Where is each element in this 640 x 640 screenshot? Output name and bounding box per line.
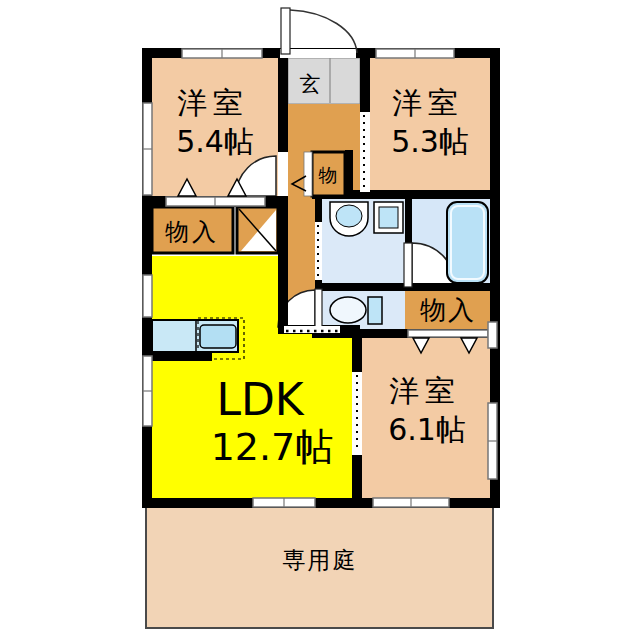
entrance-label: 玄 [300,72,321,96]
washing-machine-icon [374,202,403,233]
hall-ldk-sliding-door [284,326,340,333]
ldk-size: 12.7帖 [211,425,334,469]
bedroom-ne-type: 洋室 [392,85,464,120]
bedroom-se-sliding-door [352,372,362,455]
bedroom-ne-size: 5.3帖 [391,124,469,159]
kitchen-counter-icon [152,318,244,359]
entrance-opening [280,49,356,58]
toilet-icon [330,297,382,324]
bedroom-nw-size: 5.4帖 [176,124,254,159]
bath-door-leaf [404,243,412,287]
closet-west-label: 物入 [165,218,219,246]
window-east-small [488,322,497,348]
garden-area: 専用庭 [146,502,493,628]
bedroom-se-size: 6.1帖 [388,412,466,447]
closet-west: 物入 [152,207,278,253]
floor-plan: 専用庭 物入 [0,0,640,640]
ldk-type: LDK [216,374,304,425]
floor-plan-drawing: 専用庭 物入 [0,0,640,640]
window-ldk-left-1 [143,275,152,317]
closet-hall: 物 [304,152,345,196]
entrance-door-leaf [281,8,290,54]
closet-hall-door [304,152,312,196]
bedroom-ne-sliding-door [360,112,370,192]
garden-label: 専用庭 [283,547,358,573]
wall-wash-bath [405,198,412,244]
bedroom-nw-doorway [278,152,288,196]
bedroom-se-type: 洋室 [389,373,461,408]
bedroom-nw-type: 洋室 [177,85,249,120]
wall-kitchen-stub [152,352,212,361]
kitchen-sink-icon [200,325,236,348]
wall-wet-middle [315,283,490,291]
closet-east-label: 物入 [420,295,476,325]
closet-hall-label: 物 [319,164,338,186]
washroom-sliding-door [315,222,322,280]
bathtub-icon [447,202,488,283]
toilet-door-leaf [315,289,322,327]
washbasin-icon [330,202,368,236]
